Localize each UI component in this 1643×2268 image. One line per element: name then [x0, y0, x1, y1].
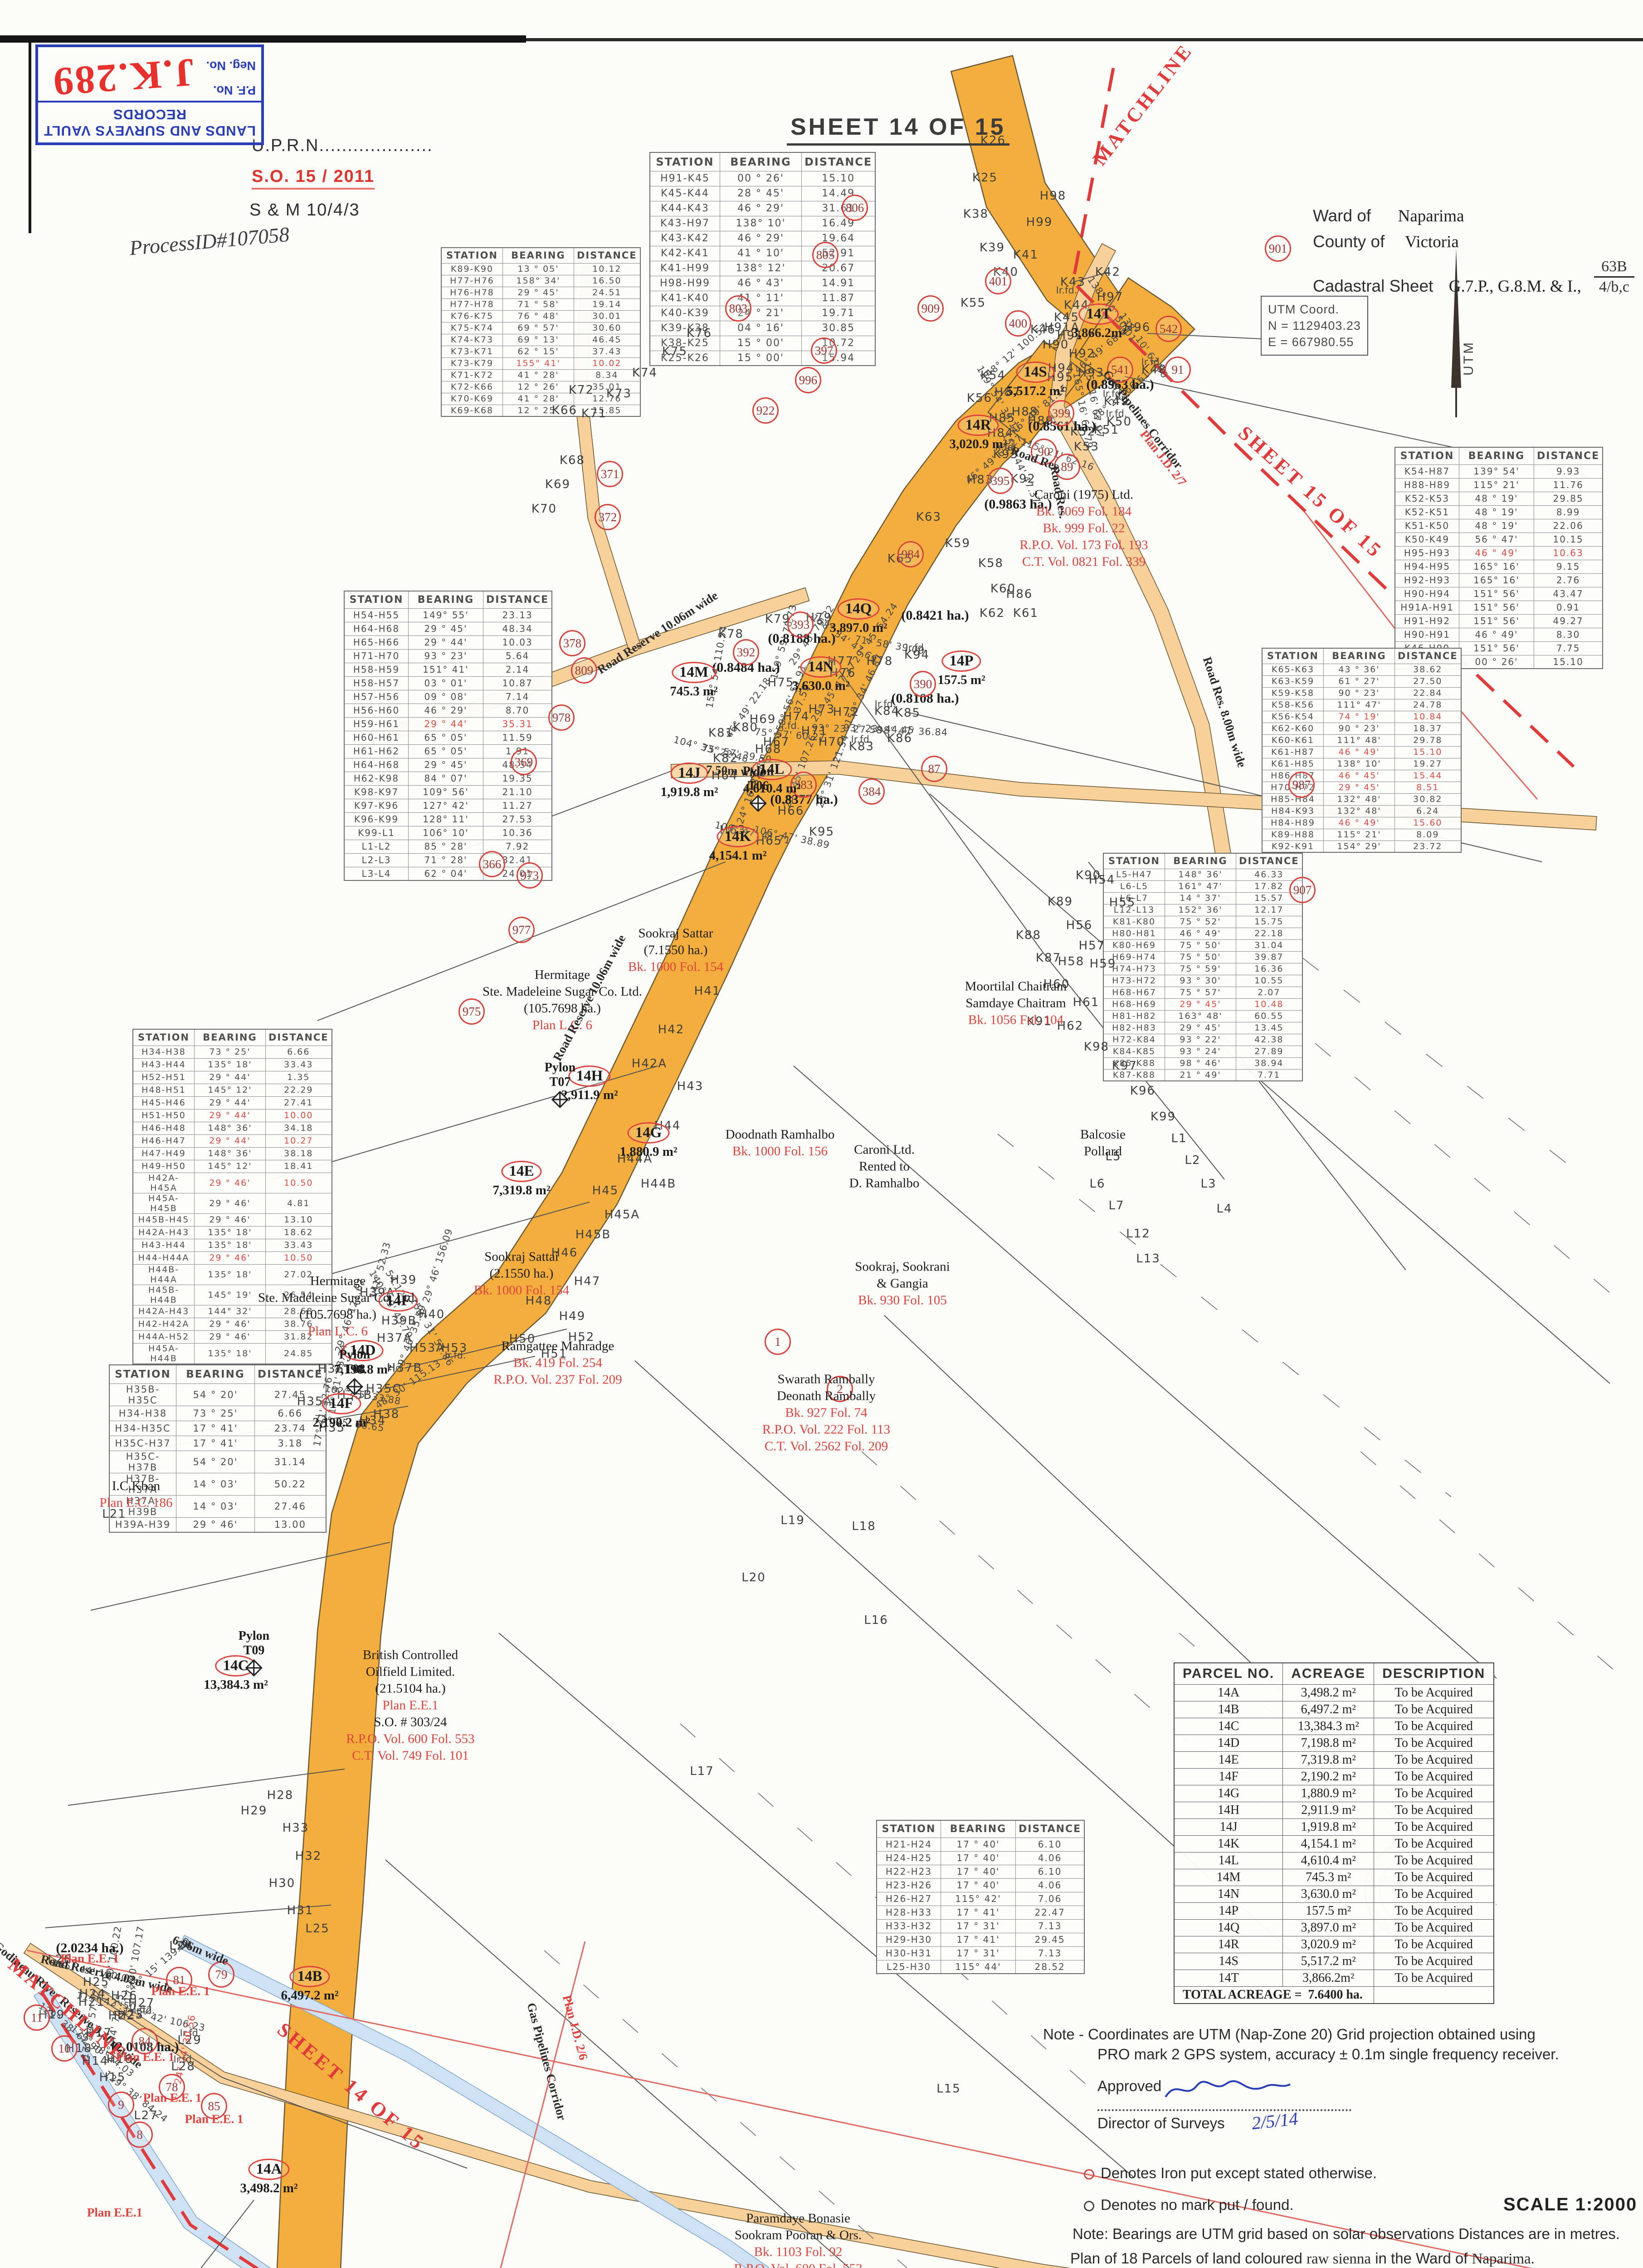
owner-line: Oilfield Limited. [346, 1664, 474, 1681]
station-cell: K96-K99 [344, 812, 409, 826]
station-cell: H60-H61 [344, 731, 409, 744]
table-row: H47-H49 148° 36' 38.18 [133, 1147, 332, 1160]
bearing-cell: 46 ° 49' [1324, 817, 1395, 829]
bearing-cell: 29 ° 44' [195, 1134, 266, 1147]
owner-label-block: BalcosiePollard [1080, 1126, 1126, 1160]
owner-line: (105.7698 ha.) [258, 1306, 418, 1323]
station-label: K61 [1013, 606, 1038, 620]
owner-line: Bk. 999 Fol. 22 [1019, 520, 1148, 537]
distance-cell: 28.52 [1016, 1960, 1085, 1974]
no-mark-icon [1084, 2201, 1094, 2211]
station-cell: K73-K79 [441, 357, 503, 369]
station-label: K63 [916, 510, 941, 524]
bearing-cell: 29 ° 46' [195, 1330, 266, 1343]
table-row: K58-K56 111° 47' 24.78 [1262, 699, 1461, 711]
station-cell: H62-K98 [344, 772, 409, 785]
distance-cell: 10.15 [1534, 533, 1603, 546]
sm-number: S & M 10/4/3 [249, 200, 360, 220]
table-row: H73-H72 93 ° 30' 10.55 [1103, 975, 1302, 987]
bearing-cell: 48 ° 19' [1459, 505, 1534, 519]
bearing-cell: 46 ° 49' [1459, 546, 1534, 560]
owner-line: Ste. Madeleine Sugar Co. Ltd. [483, 983, 642, 1000]
col-bearing: BEARING [503, 248, 574, 263]
station-label: L18 [852, 1520, 876, 1533]
owner-line: Rented to [849, 1158, 920, 1175]
distance-cell: 29.85 [1534, 492, 1603, 505]
distance-cell: 38.94 [1236, 1057, 1302, 1069]
parcel-id: 14T [1078, 303, 1119, 325]
distance-cell: 50.22 [255, 1473, 326, 1495]
distance-cell: 15.10 [1534, 655, 1603, 669]
owner-label-block: Sookraj Sattai(2.1550 ha.)Bk. 1000 Fol. … [474, 1249, 569, 1299]
iron-put-icon [1084, 2169, 1094, 2180]
note-plan-of-parcels: Plan of 18 Parcels of land coloured raw … [1070, 2250, 1535, 2268]
station-cell: H92-H93 [1395, 573, 1459, 587]
owner-line: R.P.O. Vol. 222 Fol. 113 [762, 1422, 890, 1438]
distance-cell: 15.44 [1395, 770, 1461, 782]
distance-cell: 10.27 [266, 1134, 332, 1147]
station-label: H41 [694, 984, 721, 998]
distance-cell: 0.91 [1534, 601, 1603, 614]
station-label: K59 [945, 537, 970, 550]
bearing-cell: 75 ° 50' [1165, 951, 1236, 963]
distance-cell: 39.87 [1236, 951, 1302, 963]
distance-cell: 10.50 [266, 1251, 332, 1264]
station-cell: H54-H55 [344, 608, 409, 622]
broken-boundary-line [1360, 1452, 1623, 1678]
table-row: L2-L3 71 ° 28' 32.41 [344, 853, 552, 867]
station-label: K75 [662, 345, 687, 358]
vault-stamp-number: J.K.289 [50, 49, 197, 105]
parcel-no: 14J [1174, 1819, 1283, 1836]
distance-cell: 7.13 [1016, 1946, 1085, 1960]
bearing-cell: 54 ° 20' [176, 1383, 255, 1406]
station-cell: H45B-H44B [133, 1285, 195, 1305]
table-row: H34-H38 73 ° 25' 6.66 [133, 1046, 332, 1058]
station-cell: H28-H33 [877, 1906, 941, 1919]
distance-cell: 31.04 [1236, 939, 1302, 951]
pylon-label: PylonT09 [239, 1629, 269, 1658]
parcel-label: 14K4,154.1 m² [709, 826, 766, 863]
parcel-row: 14N 3,630.0 m² To be Acquired [1174, 1886, 1494, 1903]
parcel-row: 14T 3,866.2m² To be Acquired [1174, 1970, 1494, 1987]
distance-cell: 43.47 [1534, 587, 1603, 601]
survey-table-6: STATION BEARING DISTANCEL5-H47 148° 36' … [1103, 853, 1303, 1081]
col-station: STATION [1103, 853, 1165, 869]
parcel-no: 14G [1174, 1785, 1283, 1802]
bearing-cell: 145° 12' [195, 1084, 266, 1096]
station-label: H31 [287, 1904, 314, 1917]
legend-iron-put-text: Denotes Iron put except stated otherwise… [1101, 2165, 1377, 2181]
station-cell: H30-H31 [877, 1946, 941, 1960]
parcel-description: To be Acquired [1374, 1886, 1494, 1903]
distance-cell: 60.55 [1236, 1010, 1302, 1022]
col-distance: DISTANCE [1016, 1820, 1085, 1838]
parcel-label: 14R3,020.9 m² [949, 415, 1007, 452]
parcel-acreage: 3,866.2m² [1283, 1970, 1374, 1987]
survey-table-9: STATION BEARING DISTANCEH21-H24 17 ° 40'… [876, 1820, 1085, 1974]
station-cell: K41-H99 [650, 261, 720, 276]
bearing-cell: 12 ° 26' [503, 381, 574, 393]
station-cell: H22-H23 [877, 1865, 941, 1878]
bearing-cell: 135° 18' [195, 1058, 266, 1071]
parcel-area: 745.3 m² [670, 684, 717, 699]
parcel-id: 14N [800, 656, 842, 678]
table-row: H77-H78 71 ° 58' 19.14 [441, 298, 640, 310]
parcel-label: 14N3,630.0 m² [792, 656, 849, 694]
distance-cell: 6.24 [1395, 805, 1461, 817]
table-row: H45-H46 29 ° 44' 27.41 [133, 1096, 332, 1109]
bearing-cell: 75 ° 57' [1165, 987, 1236, 998]
table-row: K99-L1 106° 10' 10.36 [344, 826, 552, 840]
station-cell: K61-H85 [1262, 758, 1324, 770]
parcel-acreage: 6,497.2 m² [1283, 1701, 1374, 1718]
owner-line: (21.5104 ha.) [346, 1681, 474, 1697]
owner-line: Sookraj Sattar [628, 925, 723, 942]
bearing-cell: 151° 56' [1459, 587, 1534, 601]
table-row: H59-H61 29 ° 44' 35.31 [344, 717, 552, 731]
table-row: K52-K53 48 ° 19' 29.85 [1395, 492, 1603, 505]
distance-cell: 30.60 [574, 322, 640, 334]
distance-cell: 7.13 [1016, 1919, 1085, 1933]
parcel-label: 14A3,498.2 m² [240, 2159, 297, 2196]
distance-cell: 11.87 [802, 291, 876, 306]
station-cell: K50-K49 [1395, 533, 1459, 546]
station-cell: K42-K41 [650, 246, 720, 261]
bearing-cell: 15 ° 00' [720, 351, 802, 366]
bearing-cell: 111° 47' [1324, 699, 1395, 711]
bearing-cell: 41 ° 28' [503, 393, 574, 405]
legend-no-mark: Denotes no mark put / found. [1084, 2196, 1294, 2214]
bearing-cell: 93 ° 30' [1165, 975, 1236, 987]
table-row: H84-K93 132° 48' 6.24 [1262, 805, 1461, 817]
cadastral-sheet-number: 63B 4/b,c [1594, 258, 1634, 296]
station-cell: H29-H30 [877, 1933, 941, 1946]
parcel-acreage: 1,919.8 m² [1283, 1819, 1374, 1836]
parcel-header-row: PARCEL NO.ACREAGEDESCRIPTION [1174, 1663, 1494, 1685]
bearing-cell: 93 ° 24' [1165, 1046, 1236, 1057]
bearing-cell: 135° 18' [195, 1226, 266, 1239]
owner-label-block: I.C.KbanPlan E.C. 186 [99, 1478, 172, 1511]
parcel-no: 14Q [1174, 1920, 1283, 1936]
station-cell: H51-H50 [133, 1109, 195, 1122]
col-station: STATION [133, 1029, 195, 1046]
table-row: H71-H70 93 ° 23' 5.64 [344, 649, 552, 663]
station-cell: H98-H99 [650, 276, 720, 291]
station-cell: H45A-H44B [133, 1343, 195, 1364]
parcel-no: 14P [1174, 1903, 1283, 1920]
distance-cell: 24.78 [1395, 699, 1461, 711]
bearing-cell: 03 ° 01' [409, 676, 483, 690]
approved-label: Approved [1097, 2077, 1161, 2095]
survey-table-4: STATION BEARING DISTANCEK54-H87 139° 54'… [1394, 447, 1603, 669]
distance-cell: 1.35 [266, 1071, 332, 1084]
col-distance: DISTANCE [1395, 648, 1461, 664]
station-cell: K51-K50 [1395, 519, 1459, 533]
station-label: H61 [1073, 996, 1100, 1009]
table-row: H84-H89 46 ° 49' 15.60 [1262, 817, 1461, 829]
parcel-row: 14D 7,198.8 m² To be Acquired [1174, 1735, 1494, 1752]
table-row: H52-H51 29 ° 44' 1.35 [133, 1071, 332, 1084]
station-cell: L2-L3 [344, 853, 409, 867]
distance-cell: 10.55 [1236, 975, 1302, 987]
lot-number-circle: 922 [752, 397, 779, 424]
lot-number-circle: 400 [1005, 310, 1031, 337]
col-station: STATION [109, 1365, 176, 1383]
table-row: H42A-H45A 29 ° 46' 10.50 [133, 1173, 332, 1193]
owner-line: Plan E.E.1 [346, 1697, 474, 1714]
station-cell: H43-H44 [133, 1058, 195, 1071]
parcel-id: 14K [717, 826, 759, 847]
bearing-cell: 29 ° 46' [195, 1251, 266, 1264]
bearing-cell: 151° 41' [409, 663, 483, 676]
station-label: K38 [963, 207, 989, 221]
lot-number-circle: 973 [517, 862, 543, 889]
pylon-marker: PylonT08 [339, 1348, 370, 1399]
parcel-acreage: 2,190.2 m² [1283, 1769, 1374, 1785]
parcel-id: 14J [670, 763, 708, 784]
station-cell: H82-H83 [1103, 1022, 1165, 1034]
table-row: H80-H81 46 ° 49' 22.18 [1103, 928, 1302, 939]
owner-line: Balcosie [1080, 1126, 1126, 1143]
parcel-label: 14P157.5 m² [937, 650, 985, 688]
station-label: K88 [1016, 929, 1041, 942]
station-label: K70 [531, 502, 557, 516]
parcel-area: 2,190.2 m² [312, 1415, 370, 1430]
distance-cell: 8.09 [1395, 829, 1461, 841]
owner-line: British Controlled [346, 1647, 474, 1664]
distance-cell: 30.82 [1395, 793, 1461, 805]
table-row: H64-H68 29 ° 45' 48.34 [344, 622, 552, 635]
county-label: County of [1313, 232, 1385, 251]
parcel-label: 14Q3,897.0 m² [829, 598, 887, 635]
station-cell: H35C-H37 [109, 1436, 176, 1451]
station-label: L13 [1136, 1252, 1160, 1266]
lot-area-label: (0.8421 ha.) [901, 608, 969, 623]
station-cell: K59-K58 [1262, 687, 1324, 699]
pylon-icon [346, 1378, 364, 1396]
station-cell: H43-H44 [133, 1239, 195, 1251]
parcel-acreage: 2,911.9 m² [1283, 1802, 1374, 1819]
station-cell: H84-K93 [1262, 805, 1324, 817]
table-row: H94-H95 165° 16' 9.15 [1395, 560, 1603, 573]
station-cell: H46-H47 [133, 1134, 195, 1147]
table-row: K61-H87 46 ° 49' 15.10 [1262, 746, 1461, 758]
parcel-no: 14A [1174, 1685, 1283, 1701]
parcel-row: 14C 13,384.3 m² To be Acquired [1174, 1718, 1494, 1735]
distance-cell: 15.10 [1395, 746, 1461, 758]
bearing-cell: 04 ° 16' [720, 321, 802, 336]
lot-number-circle: 395 [987, 468, 1014, 494]
distance-cell: 7.14 [483, 690, 552, 704]
distance-cell: 15.10 [802, 171, 876, 186]
station-cell: K71-K72 [441, 369, 503, 381]
lot-number-circle: 397 [811, 337, 837, 364]
station-label: H42 [658, 1023, 685, 1036]
distance-cell: 31.14 [255, 1451, 326, 1473]
distance-cell: 22.29 [266, 1084, 332, 1096]
utm-northing: N = 1129403.23 [1268, 318, 1361, 334]
table-row: K43-H97 138° 10' 16.49 [650, 216, 875, 231]
bearing-cell: 111° 48' [1324, 734, 1395, 746]
station-label: K71 [581, 407, 607, 420]
bearing-cell: 151° 56' [1459, 601, 1534, 614]
distance-cell: 6.10 [1016, 1865, 1085, 1878]
parcel-acreage-table: PARCEL NO.ACREAGEDESCRIPTION14A 3,498.2 … [1174, 1662, 1494, 2004]
table-row: K80-H69 75 ° 50' 31.04 [1103, 939, 1302, 951]
lot-number-circle: 977 [508, 917, 535, 943]
distance-cell: 46.45 [574, 334, 640, 346]
table-row: H68-H67 75 ° 57' 2.07 [1103, 987, 1302, 998]
owner-line: (7.1550 ha.) [628, 942, 723, 959]
bearing-cell: 152° 36' [1165, 904, 1236, 916]
distance-cell: 19.64 [802, 231, 876, 246]
station-cell: K76-K75 [441, 310, 503, 322]
bearing-cell: 62 ° 15' [503, 346, 574, 357]
distance-cell: 18.41 [266, 1160, 332, 1173]
parcel-id: 14E [501, 1161, 541, 1182]
table-row: K39-K38 04 ° 16' 30.85 [650, 321, 875, 336]
distance-cell: 12.17 [1236, 904, 1302, 916]
bearing-cell: 29 ° 45' [409, 622, 483, 635]
table-row: H90-H94 151° 56' 43.47 [1395, 587, 1603, 601]
distance-cell: 38.62 [1395, 664, 1461, 675]
distance-cell: 16.50 [574, 275, 640, 287]
bearing-cell: 75 ° 50' [1165, 939, 1236, 951]
distance-cell: 34.18 [266, 1122, 332, 1134]
parcel-label: 14M745.3 m² [670, 662, 717, 699]
parcel-col-header: PARCEL NO. [1174, 1663, 1283, 1685]
station-cell: H26-H27 [877, 1892, 941, 1906]
col-bearing: BEARING [409, 591, 483, 608]
cadastral-sheet-top: 63B [1594, 258, 1634, 278]
lot-number-circle: 91 [1165, 357, 1191, 383]
table-row: H91-H92 151° 56' 49.27 [1395, 614, 1603, 628]
distance-cell: 9.15 [1534, 560, 1603, 573]
table-row: K60-K61 111° 48' 29.78 [1262, 734, 1461, 746]
col-distance: DISTANCE [802, 152, 876, 171]
parcel-description: To be Acquired [1374, 1903, 1494, 1920]
distance-cell: 8.70 [483, 704, 552, 717]
station-label: K58 [978, 557, 1004, 570]
col-bearing: BEARING [720, 152, 802, 171]
owner-label-block: HermitageSte. Madeleine Sugar Co. Ltd.(1… [258, 1273, 418, 1340]
parcel-description: To be Acquired [1374, 1718, 1494, 1735]
parcel-acreage: 745.3 m² [1283, 1869, 1374, 1886]
col-station: STATION [1395, 447, 1459, 464]
distance-cell: 48.34 [483, 622, 552, 635]
owner-line: Hermitage [483, 967, 642, 983]
station-label: L25 [305, 1922, 330, 1936]
owner-line: Plan L.C. 6 [258, 1323, 418, 1340]
distance-cell: 7.75 [1534, 641, 1603, 655]
bearing-cell: 115° 21' [1324, 829, 1395, 841]
bearing-cell: 145° 19' [195, 1285, 266, 1305]
note-coordinates-1: Note - Coordinates are UTM (Nap-Zone 20)… [1043, 2026, 1536, 2043]
parcel-row: 14K 4,154.1 m² To be Acquired [1174, 1836, 1494, 1853]
parcel-area: 1,919.8 m² [660, 785, 718, 800]
bearing-cell: 46 ° 45' [1324, 770, 1395, 782]
bearing-cell: 15 ° 00' [720, 336, 802, 351]
station-cell: K84-K85 [1103, 1046, 1165, 1057]
bearing-cell: 48 ° 19' [1459, 492, 1534, 505]
bearing-cell: 09 ° 08' [409, 690, 483, 704]
station-label: K69 [545, 478, 570, 491]
station-cell: K52-K51 [1395, 505, 1459, 519]
parcel-description: To be Acquired [1374, 1953, 1494, 1970]
station-label: H44B [641, 1177, 676, 1191]
station-cell: K72-K66 [441, 381, 503, 393]
station-label: K62 [980, 606, 1005, 620]
distance-cell: 16.49 [802, 216, 876, 231]
station-label: H47 [574, 1275, 601, 1288]
parcel-col-header: ACREAGE [1283, 1663, 1374, 1685]
owner-line: Caroni (1975) Ltd. [1019, 487, 1148, 503]
parcel-row: 14F 2,190.2 m² To be Acquired [1174, 1769, 1494, 1785]
distance-cell: 19.71 [802, 306, 876, 321]
boundary-line [840, 671, 1043, 953]
station-cell: H21-H24 [877, 1838, 941, 1851]
station-cell: K62-K60 [1262, 723, 1324, 734]
bearing-cell: 29 ° 44' [409, 635, 483, 649]
station-cell: H44A-H52 [133, 1330, 195, 1343]
approved-dotted-line [1097, 2109, 1351, 2111]
table-row: H54-H55 149° 55' 23.13 [344, 608, 552, 622]
parcel-area: 3,630.0 m² [792, 679, 849, 694]
parcel-description: To be Acquired [1374, 1853, 1494, 1869]
bearing-cell: 71 ° 28' [409, 853, 483, 867]
lot-number-circle: 366 [479, 851, 505, 877]
parcel-no: 14F [1174, 1769, 1283, 1785]
vault-stamp-title: LANDS AND SURVEYS VAULT RECORDS [38, 101, 261, 142]
table-row: K56-K54 74 ° 19' 10.84 [1262, 711, 1461, 723]
station-cell: H42A-H43 [133, 1305, 195, 1318]
broken-boundary-line [998, 1134, 1451, 1497]
table-row: H34-H35C 17 ° 41' 23.74 [109, 1421, 326, 1436]
station-label: H38 [373, 1408, 400, 1421]
bearing-cell: 46 ° 49' [1165, 928, 1236, 939]
table-row: H49-H50 145° 12' 18.41 [133, 1160, 332, 1173]
col-bearing: BEARING [941, 1820, 1016, 1838]
lot-number-circle: 392 [733, 639, 759, 665]
bearing-cell: 145° 12' [195, 1160, 266, 1173]
station-cell: H88-H89 [1395, 478, 1459, 492]
bearing-cell: 29 ° 46' [195, 1213, 266, 1226]
bearing-cell: 75 ° 52' [1165, 916, 1236, 928]
table-row: H43-H44 135° 18' 33.43 [133, 1058, 332, 1071]
table-row: H34-H38 73 ° 25' 6.66 [109, 1406, 326, 1421]
station-cell: H65-H66 [344, 635, 409, 649]
distance-cell: 10.12 [574, 263, 640, 275]
parcel-no: 14M [1174, 1869, 1283, 1886]
owner-line: Bk. 1069 Fol. 184 [1019, 503, 1148, 520]
distance-cell: 49.27 [1534, 614, 1603, 628]
bearing-cell: 158° 34' [503, 275, 574, 287]
station-cell: H47-H49 [133, 1147, 195, 1160]
parcel-acreage: 4,610.4 m² [1283, 1853, 1374, 1869]
bearing-cell: 127° 42' [409, 799, 483, 812]
bearing-cell: 17 ° 40' [941, 1865, 1016, 1878]
distance-cell: 10.63 [1534, 546, 1603, 560]
distance-cell: 10.87 [483, 676, 552, 690]
note-bearings: Note: Bearings are UTM grid based on sol… [1073, 2225, 1620, 2243]
lot-number-circle: 984 [897, 541, 924, 567]
bearing-cell: 93 ° 22' [1165, 1034, 1236, 1046]
table-row: K45-K44 28 ° 45' 14.49 [650, 186, 875, 201]
owner-line: C.T. Vol. 0821 Fol. 339 [1019, 554, 1148, 571]
director-of-surveys-label: Director of Surveys [1097, 2115, 1225, 2132]
distance-cell: 10.48 [1236, 998, 1302, 1010]
